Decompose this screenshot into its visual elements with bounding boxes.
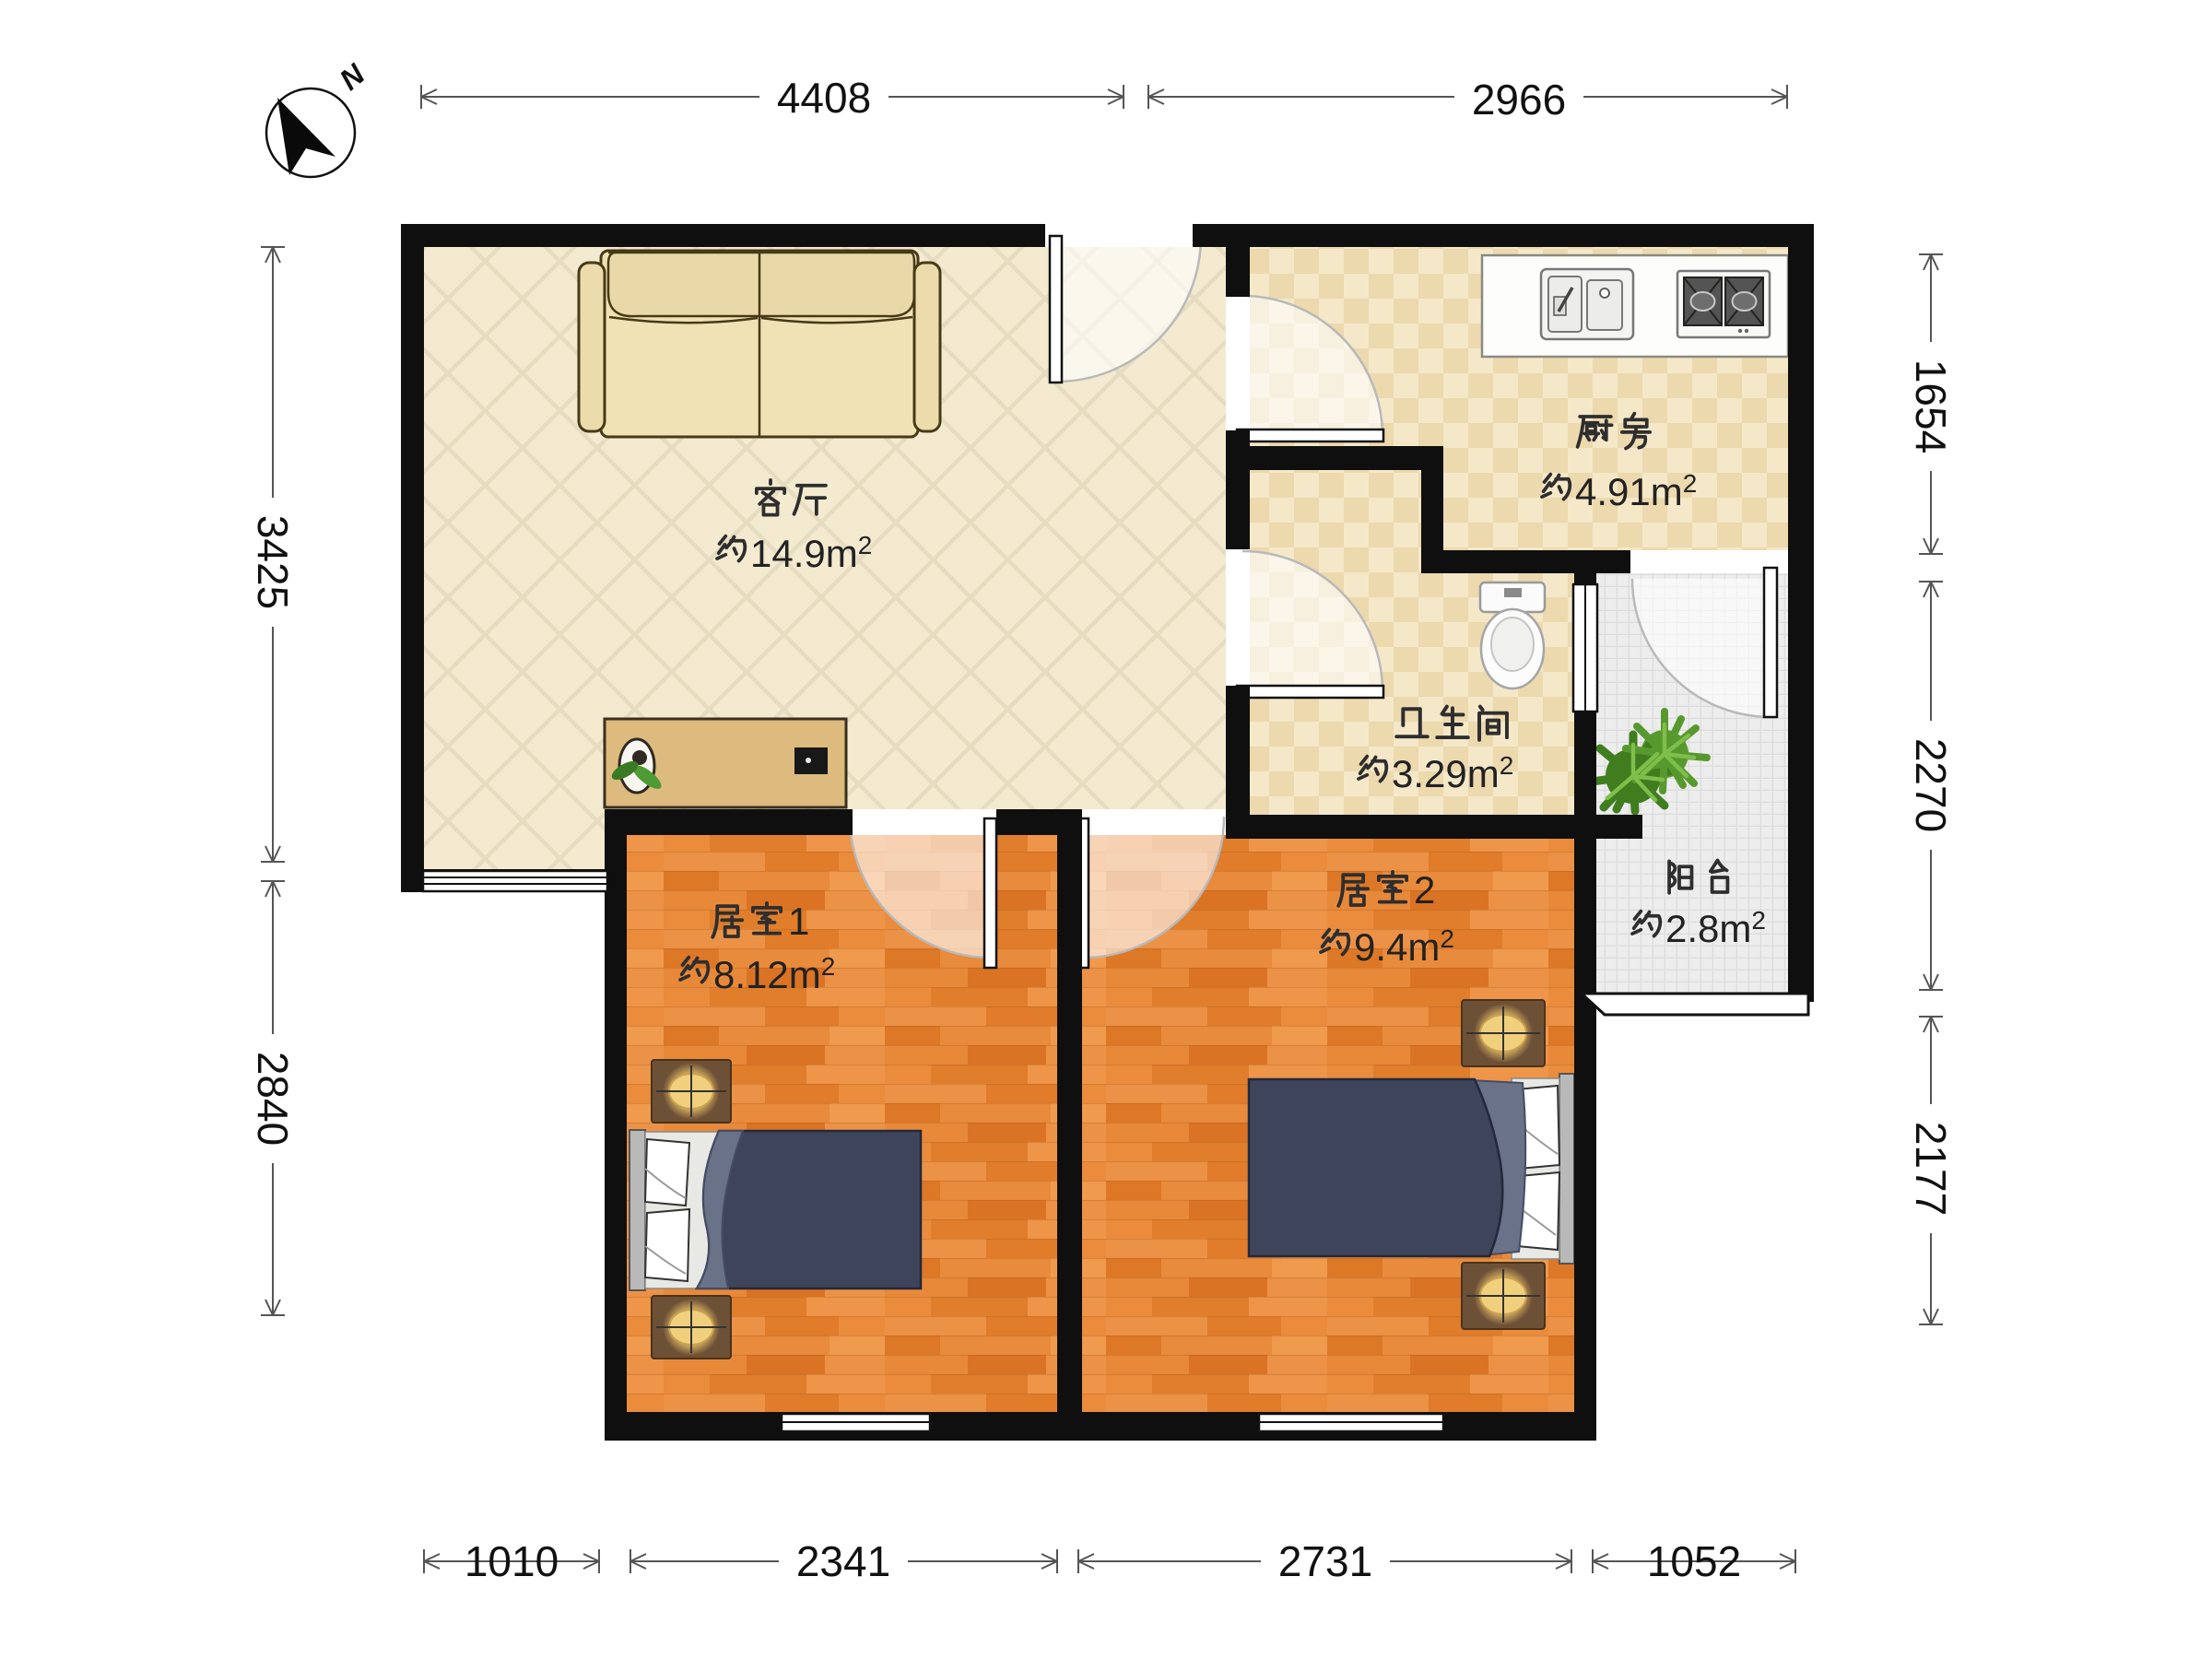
svg-text:1: 1: [788, 900, 809, 943]
svg-text:1052: 1052: [1647, 1537, 1741, 1585]
svg-text:14.9m2: 14.9m2: [750, 531, 872, 575]
svg-text:4.91m2: 4.91m2: [1575, 469, 1697, 513]
svg-text:1654: 1654: [1907, 359, 1955, 453]
svg-text:3425: 3425: [249, 515, 297, 609]
svg-text:4408: 4408: [777, 74, 871, 122]
svg-text:2: 2: [1414, 868, 1435, 912]
svg-text:8.12m2: 8.12m2: [713, 952, 835, 996]
svg-text:2177: 2177: [1907, 1122, 1955, 1216]
svg-text:2270: 2270: [1907, 738, 1955, 832]
svg-text:2731: 2731: [1278, 1537, 1372, 1585]
svg-text:2341: 2341: [796, 1537, 890, 1585]
svg-text:9.4m2: 9.4m2: [1354, 924, 1454, 969]
svg-text:2.8m2: 2.8m2: [1665, 906, 1766, 950]
svg-text:3.29m2: 3.29m2: [1392, 751, 1513, 795]
svg-text:1010: 1010: [465, 1537, 559, 1585]
svg-text:2966: 2966: [1472, 76, 1566, 124]
svg-text:2840: 2840: [249, 1052, 297, 1146]
